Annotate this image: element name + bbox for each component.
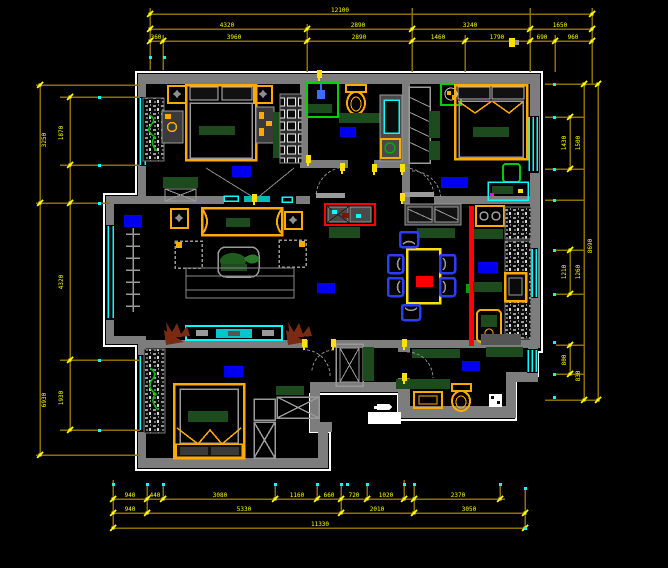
dim-text: 440 [150,492,161,499]
dim-text: 3240 [463,22,478,29]
bedroom-top-right[interactable] [409,84,528,200]
cad-viewport[interactable]: 12100 4320 2890 3240 1650 360 3960 2890 … [0,0,668,568]
tv-cabinet[interactable] [186,326,282,340]
room-label-living-west [124,215,142,227]
dim-text: 4320 [220,22,235,29]
shower[interactable] [306,83,338,117]
dim-text: 1500 [575,135,582,150]
dim-text: 1160 [290,492,305,499]
wash-basin[interactable] [414,392,442,408]
mirror-cabinet[interactable] [380,95,402,161]
dim-text: 1790 [490,34,505,41]
bathroom-top[interactable] [306,83,402,198]
dim-text: 660 [324,492,335,499]
kitchen-sink[interactable] [505,273,526,301]
dim-text: 1210 [561,264,568,279]
dim-text: 1020 [379,492,394,499]
dim-text: 6930 [41,392,48,407]
floor-drain [489,394,502,407]
door-arc-corridor [312,350,334,372]
dim-text: 1460 [431,34,446,41]
dim-text: 1930 [58,390,65,405]
area-rug [186,268,294,298]
window-living-left [106,225,115,320]
bedroom-top-left[interactable] [143,85,302,201]
window-bedroom2-right [528,116,539,173]
bench[interactable] [163,177,198,188]
room-label-bedroom2 [441,177,468,188]
nightstand-left[interactable] [168,86,186,103]
dim-text: 1870 [58,125,65,140]
dim-text: 720 [349,492,360,499]
dim-text: 3250 [41,132,48,147]
dim-text: 4320 [58,274,65,289]
bath2-shelf-top[interactable] [412,349,460,358]
floor-plan-canvas[interactable]: 12100 4320 2890 3240 1650 360 3960 2890 … [0,0,668,568]
dim-text: 830 [575,370,582,381]
dim-text: 5330 [237,506,252,513]
cabinet-x[interactable] [336,344,363,386]
chair-green[interactable] [503,164,520,182]
counter-hatched-1[interactable] [505,207,531,239]
dim-text: 3080 [213,492,228,499]
bathroom-bottom[interactable] [396,349,502,411]
entry-door-leaf [405,192,434,197]
dim-tag [509,38,519,47]
dim-text: 3960 [227,34,242,41]
hall-bench[interactable] [329,227,360,238]
plant-right[interactable] [286,322,312,345]
dim-text: 12100 [331,7,349,14]
double-bed[interactable] [186,85,256,160]
sideboard-shelf[interactable] [417,228,455,238]
dim-text: 800 [561,354,568,365]
window-bathroom2-right [527,349,538,373]
wardrobe-hatched-3[interactable] [144,349,165,433]
door-leaf [316,193,345,198]
door-arc-bathroom-top [316,167,345,196]
room-label-bedroom1 [232,166,251,177]
living-room[interactable] [124,208,335,345]
room-label-kitchen [478,262,498,273]
dim-text: 11330 [311,521,329,528]
double-bed-2[interactable] [455,85,527,159]
radiator[interactable] [126,228,140,312]
gas-stove[interactable] [476,206,504,226]
dim-text: 1430 [561,135,568,150]
dim-text: 3050 [462,506,477,513]
dim-text: 940 [125,492,136,499]
entry-mat [368,412,401,424]
wardrobe-hatched[interactable] [143,98,164,161]
dresser-mirror[interactable] [256,107,282,158]
dim-text: 2890 [351,22,366,29]
room-label-living-east [317,283,335,293]
open-wardrobe[interactable] [409,87,440,163]
dressing-table[interactable] [162,111,183,143]
room-label-bathroom-top [340,127,356,137]
shoe-cabinet-red[interactable] [325,204,375,225]
cabinet-side-panel [363,347,374,381]
room-label-bathroom2 [462,361,480,371]
bedroom-bottom-left[interactable] [144,349,330,458]
kitchen[interactable] [473,206,531,357]
double-bed-3[interactable] [174,384,244,458]
dining-set[interactable] [388,232,455,320]
red-highlight-wall[interactable] [466,206,474,346]
counter-shelf-2[interactable] [473,282,502,292]
room-label-bedroom3 [224,366,243,377]
vanity-counter[interactable] [339,113,381,123]
door-arc-bedroom3 [307,350,330,376]
dim-text: 1650 [553,22,568,29]
dim-text: 2010 [370,506,385,513]
dining-room[interactable] [388,232,498,320]
counter-shelf-1[interactable] [474,229,503,239]
dim-text: 360 [151,34,162,41]
entry-arrow-icon [374,404,392,410]
dim-text: 940 [125,506,136,513]
coffee-table[interactable] [218,247,260,277]
dim-text: 2890 [352,34,367,41]
closet-shelved[interactable] [280,94,302,163]
windows [106,97,539,432]
dim-text: 2370 [451,492,466,499]
dim-text: 690 [537,34,548,41]
counter-shelf-3[interactable] [486,347,523,357]
toilet[interactable] [346,85,366,114]
dim-text: 960 [568,34,579,41]
dim-text: 1260 [575,264,582,279]
counter-slab [481,334,521,345]
sideboard[interactable] [405,204,461,225]
dim-text: 8690 [587,238,594,253]
